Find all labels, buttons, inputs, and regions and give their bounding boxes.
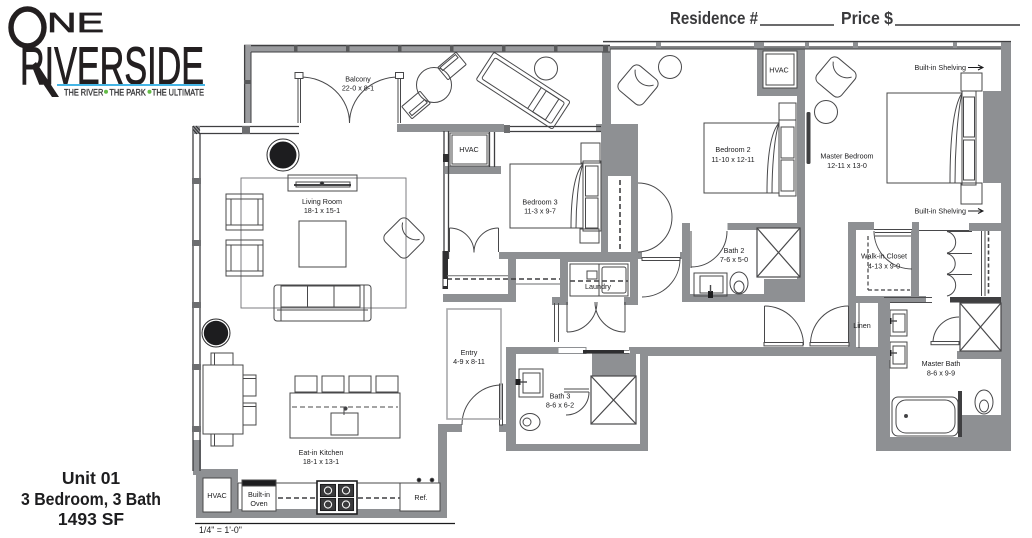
svg-text:22-0 x 8-1: 22-0 x 8-1 [342, 84, 374, 93]
svg-text:Master Bedroom: Master Bedroom [820, 152, 873, 161]
svg-text:Living Room: Living Room [302, 197, 342, 206]
svg-text:11-3 x 9-7: 11-3 x 9-7 [524, 207, 556, 216]
svg-text:HVAC: HVAC [207, 491, 226, 500]
svg-text:Bedroom 3: Bedroom 3 [522, 198, 557, 207]
svg-text:Built-in Shelving: Built-in Shelving [914, 207, 966, 216]
svg-text:HVAC: HVAC [459, 145, 478, 154]
svg-text:8-6 x 9-9: 8-6 x 9-9 [927, 369, 955, 378]
svg-text:HVAC: HVAC [769, 66, 788, 75]
svg-text:Linen: Linen [853, 321, 871, 330]
svg-text:1/4" = 1'-0": 1/4" = 1'-0" [199, 525, 242, 535]
svg-text:Eat-in Kitchen: Eat-in Kitchen [299, 448, 344, 457]
svg-text:Walk-in Closet: Walk-in Closet [861, 252, 907, 261]
svg-text:NE: NE [47, 7, 104, 38]
svg-text:4-9 x 8-11: 4-9 x 8-11 [453, 357, 485, 366]
svg-text:Built-in Shelving: Built-in Shelving [914, 63, 966, 72]
svg-text:THE RIVER THE PARK THE ULT: THE RIVER THE PARK THE ULTIMATE [64, 88, 204, 98]
svg-text:Price $: Price $ [841, 8, 893, 28]
svg-text:1493 SF: 1493 SF [58, 509, 124, 529]
svg-text:3 Bedroom, 3 Bath: 3 Bedroom, 3 Bath [21, 489, 161, 509]
svg-text:Master Bath: Master Bath [922, 359, 961, 368]
svg-text:Residence #: Residence # [670, 8, 758, 28]
svg-text:Built-in: Built-in [248, 490, 270, 499]
svg-text:Bath 3: Bath 3 [550, 392, 571, 401]
svg-text:18-1 x 13-1: 18-1 x 13-1 [303, 457, 339, 466]
svg-text:12-11 x 13-0: 12-11 x 13-0 [827, 161, 867, 170]
svg-text:18-1 x 15-1: 18-1 x 15-1 [304, 206, 340, 215]
svg-text:8-6 x 6-2: 8-6 x 6-2 [546, 401, 574, 410]
svg-text:Bedroom 2: Bedroom 2 [715, 145, 750, 154]
svg-text:11-10 x 12-11: 11-10 x 12-11 [711, 155, 754, 164]
svg-text:Balcony: Balcony [345, 75, 371, 84]
svg-text:Ref.: Ref. [414, 493, 427, 502]
svg-text:Bath 2: Bath 2 [724, 246, 745, 255]
svg-text:7-6 x 5-0: 7-6 x 5-0 [720, 255, 748, 264]
svg-text:4-13 x 9-0: 4-13 x 9-0 [868, 262, 900, 271]
svg-text:Oven: Oven [250, 499, 267, 508]
svg-text:Laundry: Laundry [585, 282, 611, 291]
svg-text:Entry: Entry [461, 348, 478, 357]
svg-text:Unit 01: Unit 01 [62, 468, 121, 488]
